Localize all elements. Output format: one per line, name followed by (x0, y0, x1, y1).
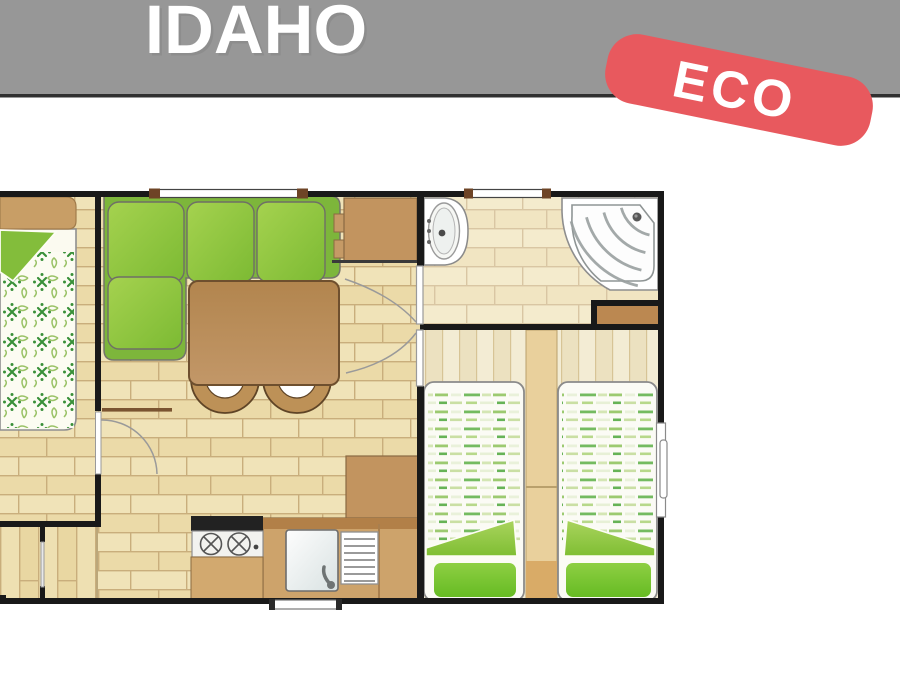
svg-text:IDAHO: IDAHO (145, 0, 367, 68)
